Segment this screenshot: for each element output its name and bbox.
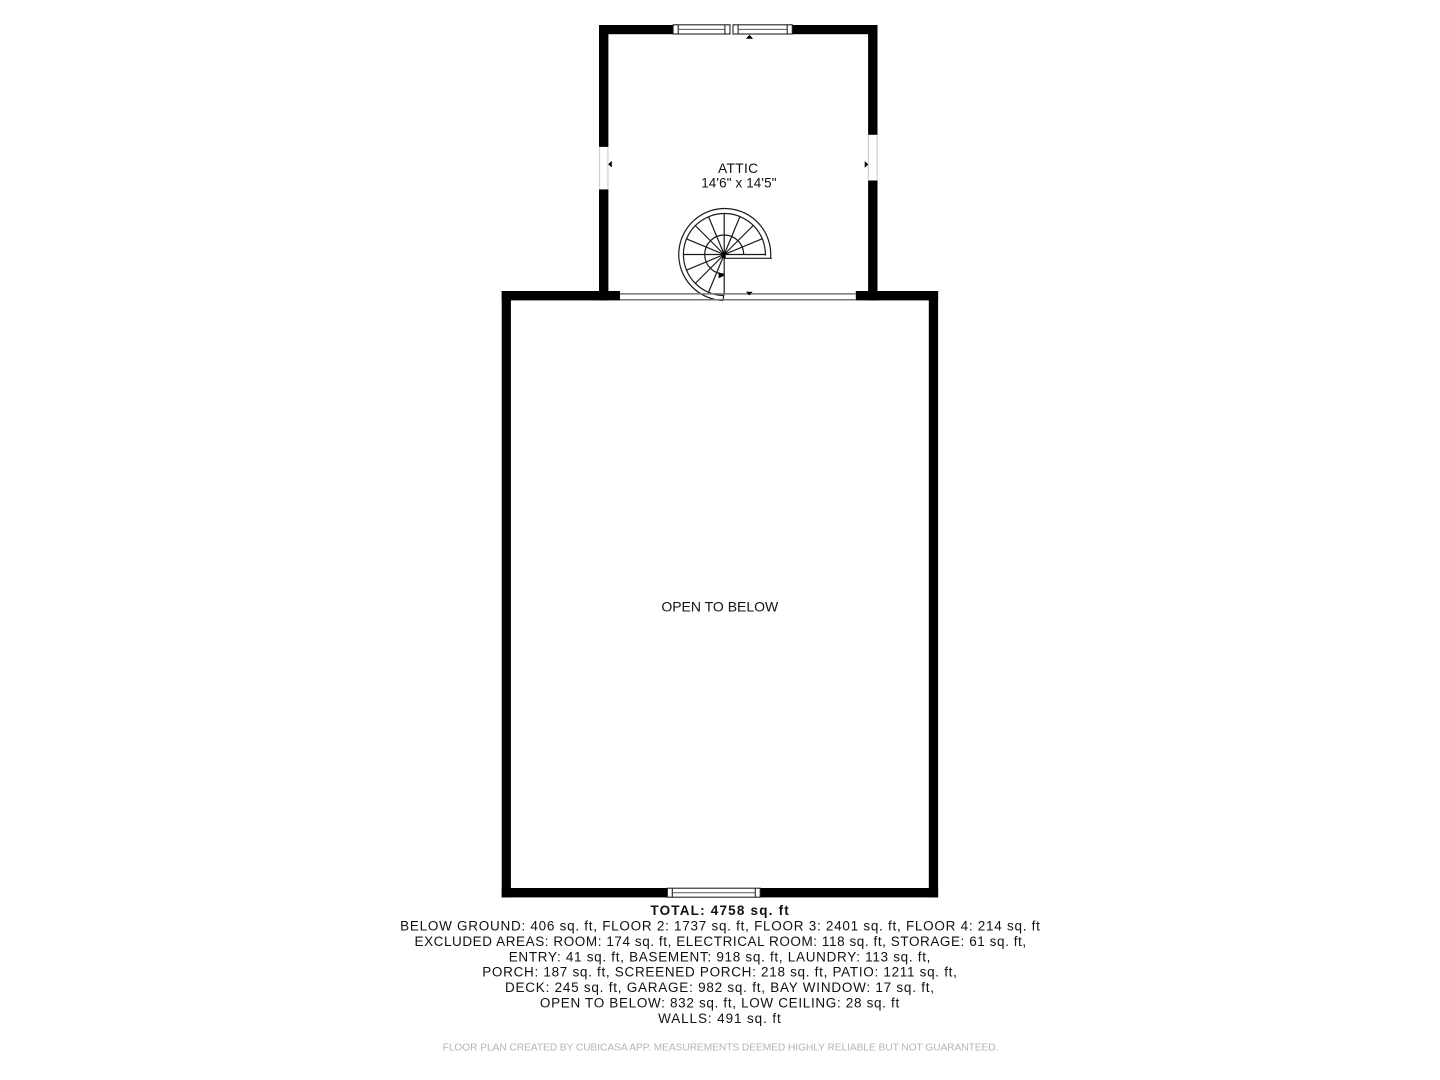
svg-text:PORCH: 187 sq. ft, SCREENED PO: PORCH: 187 sq. ft, SCREENED PORCH: 218 s… — [482, 965, 957, 980]
svg-text:BELOW GROUND: 406 sq. ft, FLOO: BELOW GROUND: 406 sq. ft, FLOOR 2: 1737 … — [400, 918, 1040, 933]
svg-text:14'6" x 14'5": 14'6" x 14'5" — [701, 176, 776, 191]
svg-text:EXCLUDED AREAS: ROOM: 174 sq.: EXCLUDED AREAS: ROOM: 174 sq. ft, ELECTR… — [415, 934, 1027, 949]
svg-text:ATTIC: ATTIC — [718, 161, 758, 176]
svg-text:OPEN TO BELOW: 832 sq. ft, LOW: OPEN TO BELOW: 832 sq. ft, LOW CEILING: … — [540, 995, 900, 1010]
svg-text:TOTAL: 4758 sq. ft: TOTAL: 4758 sq. ft — [650, 903, 790, 918]
svg-text:OPEN TO BELOW: OPEN TO BELOW — [661, 598, 779, 614]
svg-text:WALLS: 491 sq. ft: WALLS: 491 sq. ft — [658, 1011, 782, 1026]
svg-text:DECK: 245 sq. ft, GARAGE: 982: DECK: 245 sq. ft, GARAGE: 982 sq. ft, BA… — [505, 980, 935, 995]
svg-text:FLOOR PLAN CREATED BY CUBICASA: FLOOR PLAN CREATED BY CUBICASA APP. MEAS… — [443, 1043, 999, 1054]
svg-text:ENTRY: 41 sq. ft, BASEMENT: 91: ENTRY: 41 sq. ft, BASEMENT: 918 sq. ft, … — [509, 949, 931, 964]
